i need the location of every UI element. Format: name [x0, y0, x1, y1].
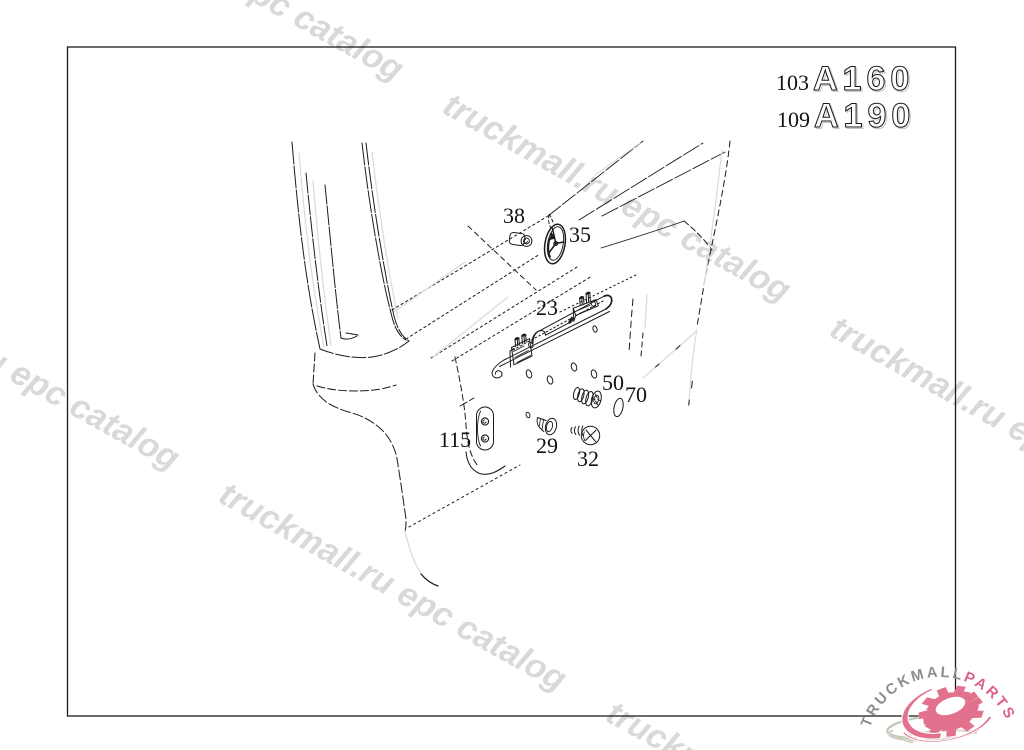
svg-text:A160: A160 [813, 60, 914, 98]
svg-text:103: 103 [776, 70, 809, 95]
svg-text:29: 29 [536, 433, 558, 458]
svg-text:115: 115 [439, 427, 471, 452]
svg-text:A190: A190 [814, 97, 915, 135]
svg-text:38: 38 [503, 203, 525, 228]
svg-text:109: 109 [777, 107, 810, 132]
svg-text:23: 23 [536, 295, 558, 320]
svg-text:32: 32 [577, 446, 599, 471]
svg-text:70: 70 [625, 382, 647, 407]
svg-text:35: 35 [569, 222, 591, 247]
svg-text:50: 50 [602, 370, 624, 395]
